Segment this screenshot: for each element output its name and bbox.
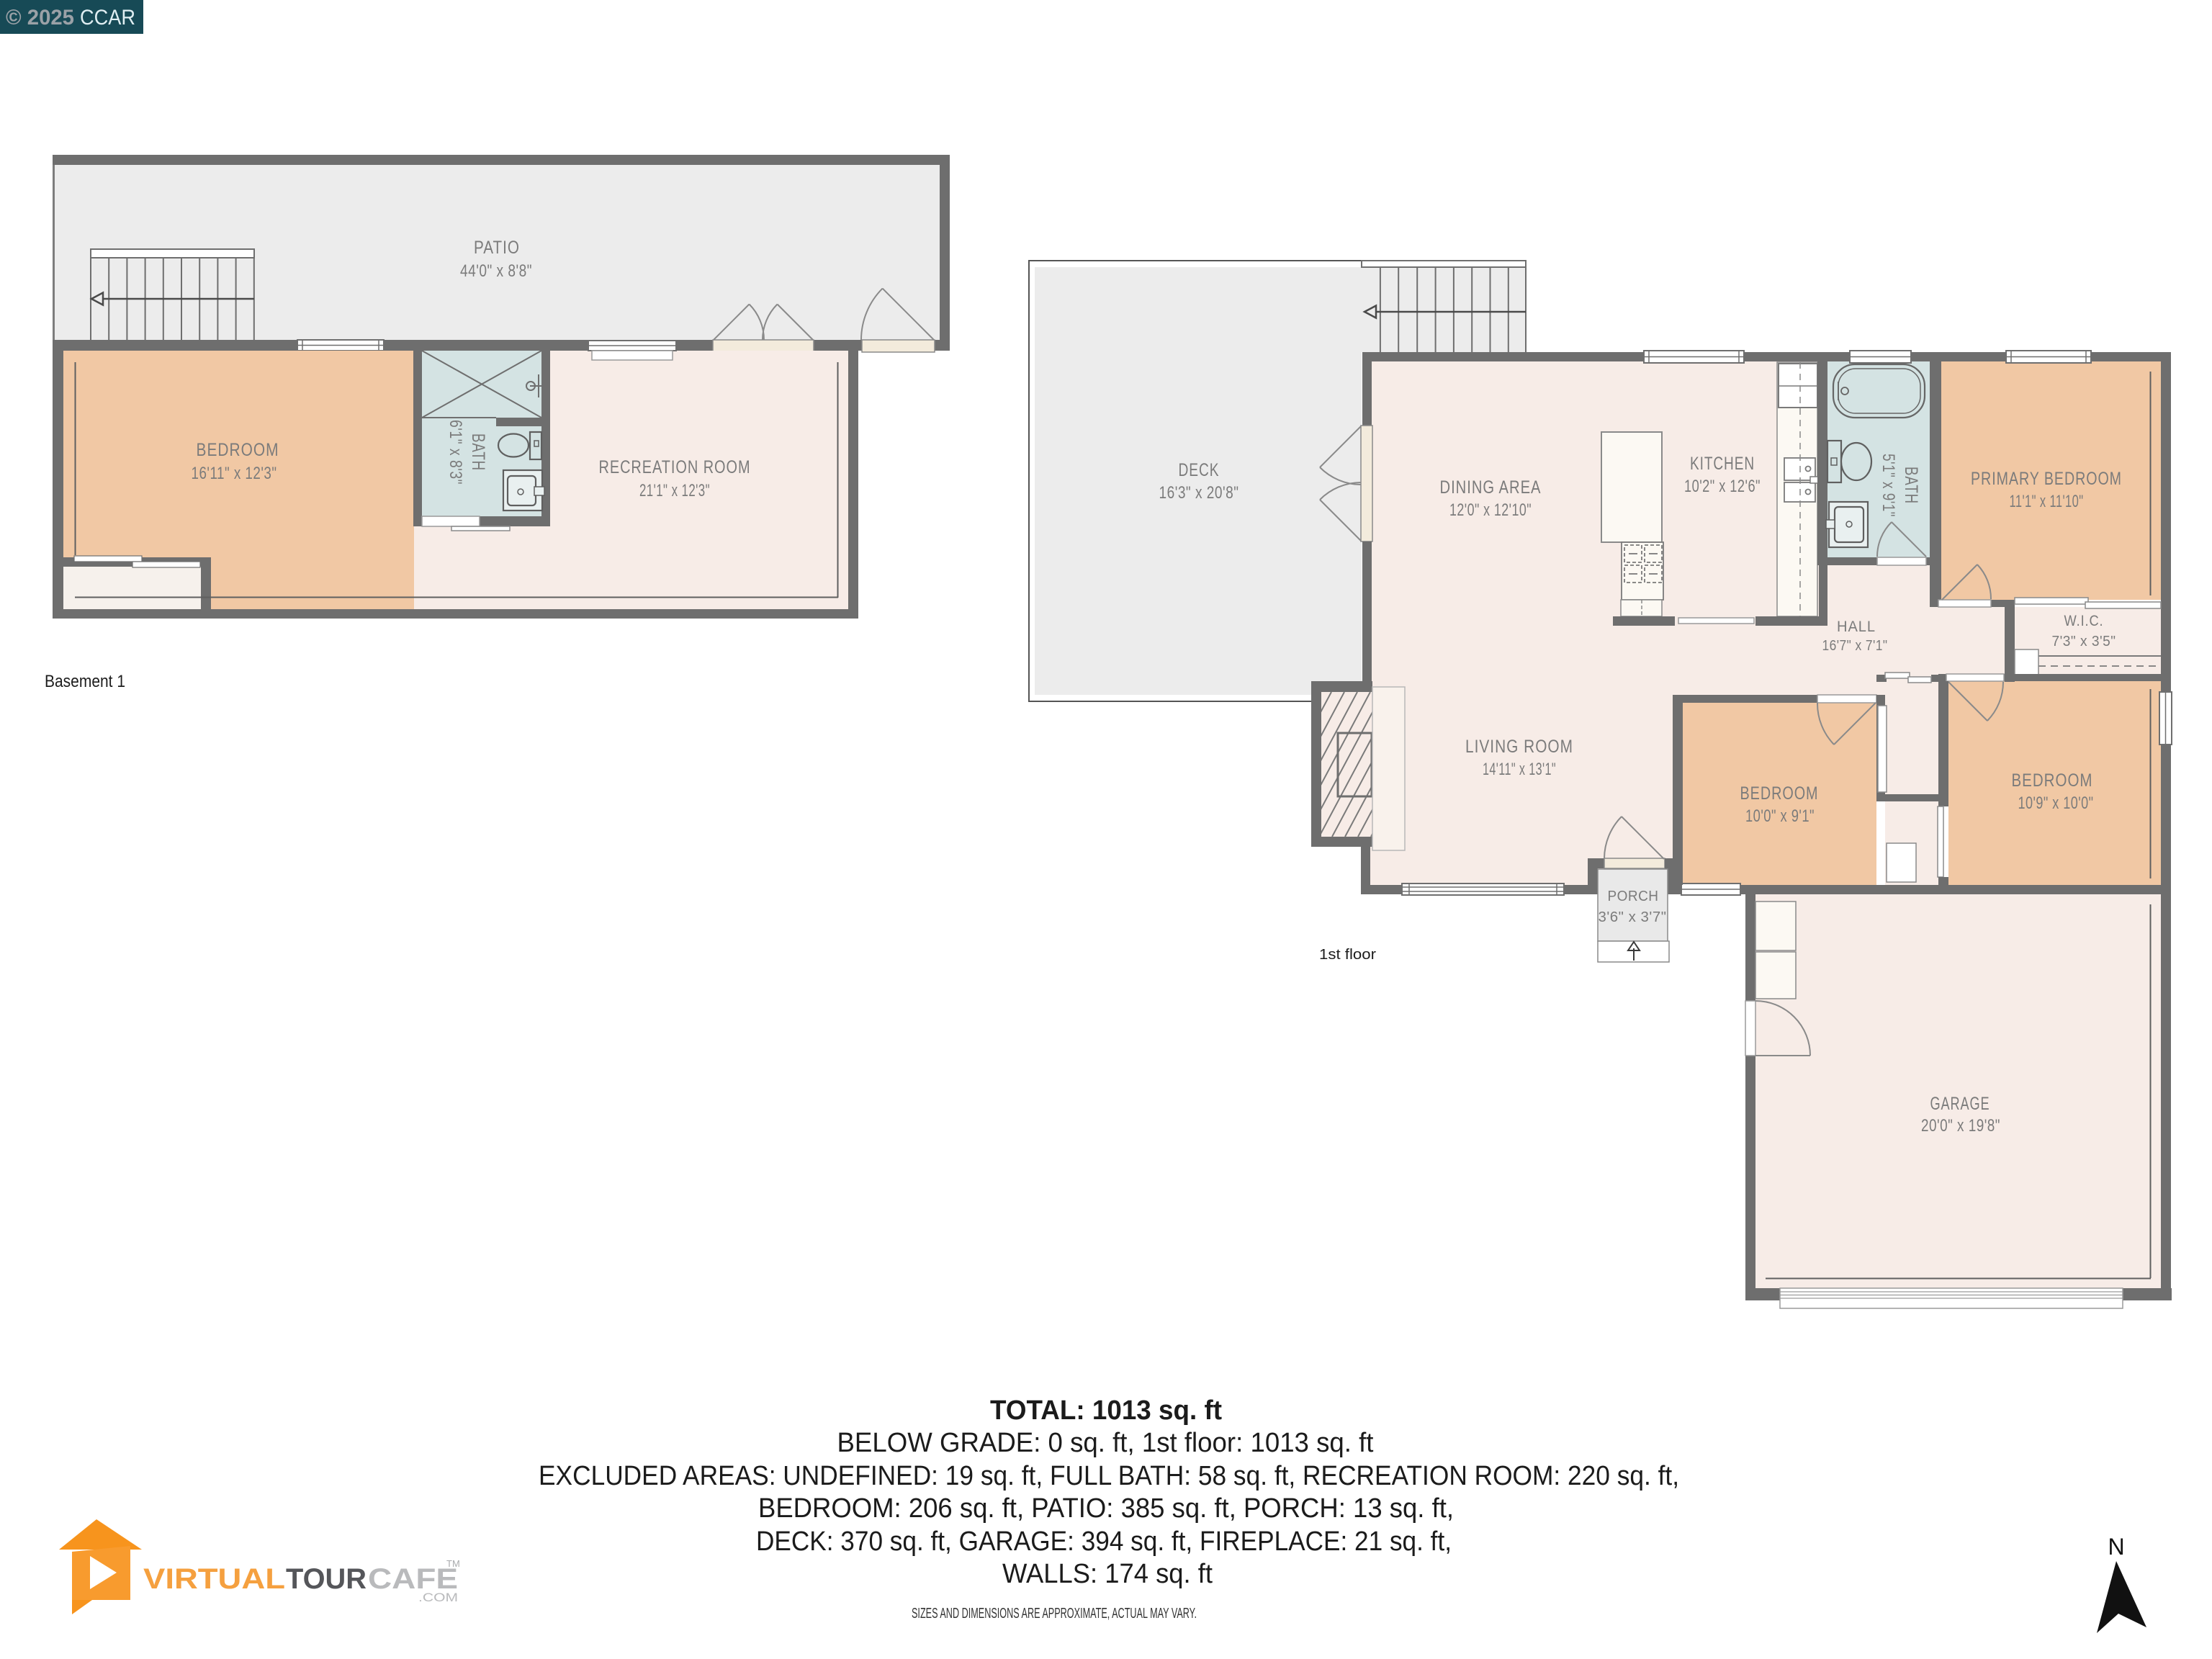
svg-text:21'1" x 12'3": 21'1" x 12'3" [639, 481, 710, 500]
svg-text:11'1" x 11'10": 11'1" x 11'10" [2010, 492, 2084, 511]
svg-text:TOTAL: 1013 sq. ft: TOTAL: 1013 sq. ft [990, 1395, 1222, 1426]
svg-text:16'3" x 20'8": 16'3" x 20'8" [1159, 483, 1239, 503]
svg-text:5'1" x 9'1": 5'1" x 9'1" [1879, 454, 1898, 517]
svg-text:BEDROOM: BEDROOM [2012, 770, 2093, 791]
svg-text:W.I.C.: W.I.C. [2064, 613, 2104, 629]
svg-text:BEDROOM: BEDROOM [1740, 783, 1819, 804]
svg-text:7'3" x 3'5": 7'3" x 3'5" [2052, 634, 2116, 649]
svg-text:10'2" x 12'6": 10'2" x 12'6" [1684, 477, 1761, 496]
svg-text:12'0" x 12'10": 12'0" x 12'10" [1449, 500, 1532, 520]
svg-text:LIVING ROOM: LIVING ROOM [1465, 737, 1573, 757]
svg-text:DECK: DECK [1179, 460, 1220, 480]
svg-text:TOUR: TOUR [286, 1563, 367, 1595]
svg-text:RECREATION ROOM: RECREATION ROOM [599, 457, 751, 477]
svg-text:TM: TM [446, 1558, 460, 1569]
svg-text:.COM: .COM [418, 1591, 458, 1604]
svg-text:KITCHEN: KITCHEN [1690, 454, 1755, 474]
svg-text:16'11" x 12'3": 16'11" x 12'3" [192, 464, 277, 483]
svg-text:N: N [2108, 1534, 2124, 1560]
svg-text:HALL: HALL [1837, 619, 1876, 635]
svg-text:© 2025: © 2025 [6, 6, 74, 30]
svg-text:16'7" x 7'1": 16'7" x 7'1" [1822, 638, 1888, 654]
svg-text:SIZES AND DIMENSIONS ARE APPRO: SIZES AND DIMENSIONS ARE APPROXIMATE, AC… [912, 1606, 1197, 1622]
svg-text:CCAR: CCAR [80, 6, 135, 30]
svg-text:PATIO: PATIO [474, 238, 520, 258]
svg-text:BELOW GRADE: 0 sq. ft, 1st flo: BELOW GRADE: 0 sq. ft, 1st floor: 1013 s… [837, 1428, 1374, 1458]
svg-text:44'0" x 8'8": 44'0" x 8'8" [460, 261, 532, 281]
svg-text:Basement 1: Basement 1 [45, 672, 125, 691]
svg-text:10'9" x 10'0": 10'9" x 10'0" [2018, 793, 2094, 813]
svg-text:PORCH: PORCH [1608, 889, 1659, 904]
svg-text:6'1" x 8'3": 6'1" x 8'3" [446, 420, 465, 485]
svg-text:1st floor: 1st floor [1319, 947, 1376, 963]
svg-text:14'11" x 13'1": 14'11" x 13'1" [1483, 760, 1556, 779]
svg-text:BATH: BATH [1901, 467, 1921, 504]
svg-text:BEDROOM: BEDROOM [197, 440, 279, 460]
svg-text:10'0" x 9'1": 10'0" x 9'1" [1745, 806, 1815, 826]
svg-text:DECK: 370 sq. ft, GARAGE: 394: DECK: 370 sq. ft, GARAGE: 394 sq. ft, FI… [756, 1527, 1452, 1557]
svg-text:GARAGE: GARAGE [1930, 1094, 1990, 1114]
svg-text:EXCLUDED AREAS: UNDEFINED: 19: EXCLUDED AREAS: UNDEFINED: 19 sq. ft, FU… [539, 1461, 1679, 1491]
svg-text:20'0" x 19'8": 20'0" x 19'8" [1921, 1116, 2000, 1136]
svg-text:PRIMARY BEDROOM: PRIMARY BEDROOM [1971, 469, 2122, 489]
svg-text:WALLS: 174 sq. ft: WALLS: 174 sq. ft [1002, 1559, 1213, 1589]
svg-text:DINING AREA: DINING AREA [1440, 477, 1542, 498]
svg-text:VIRTUAL: VIRTUAL [143, 1563, 285, 1595]
svg-text:BEDROOM: 206 sq. ft, PATIO: 38: BEDROOM: 206 sq. ft, PATIO: 385 sq. ft, … [758, 1493, 1454, 1524]
svg-text:3'6" x 3'7": 3'6" x 3'7" [1599, 909, 1667, 925]
svg-text:BATH: BATH [468, 433, 488, 471]
